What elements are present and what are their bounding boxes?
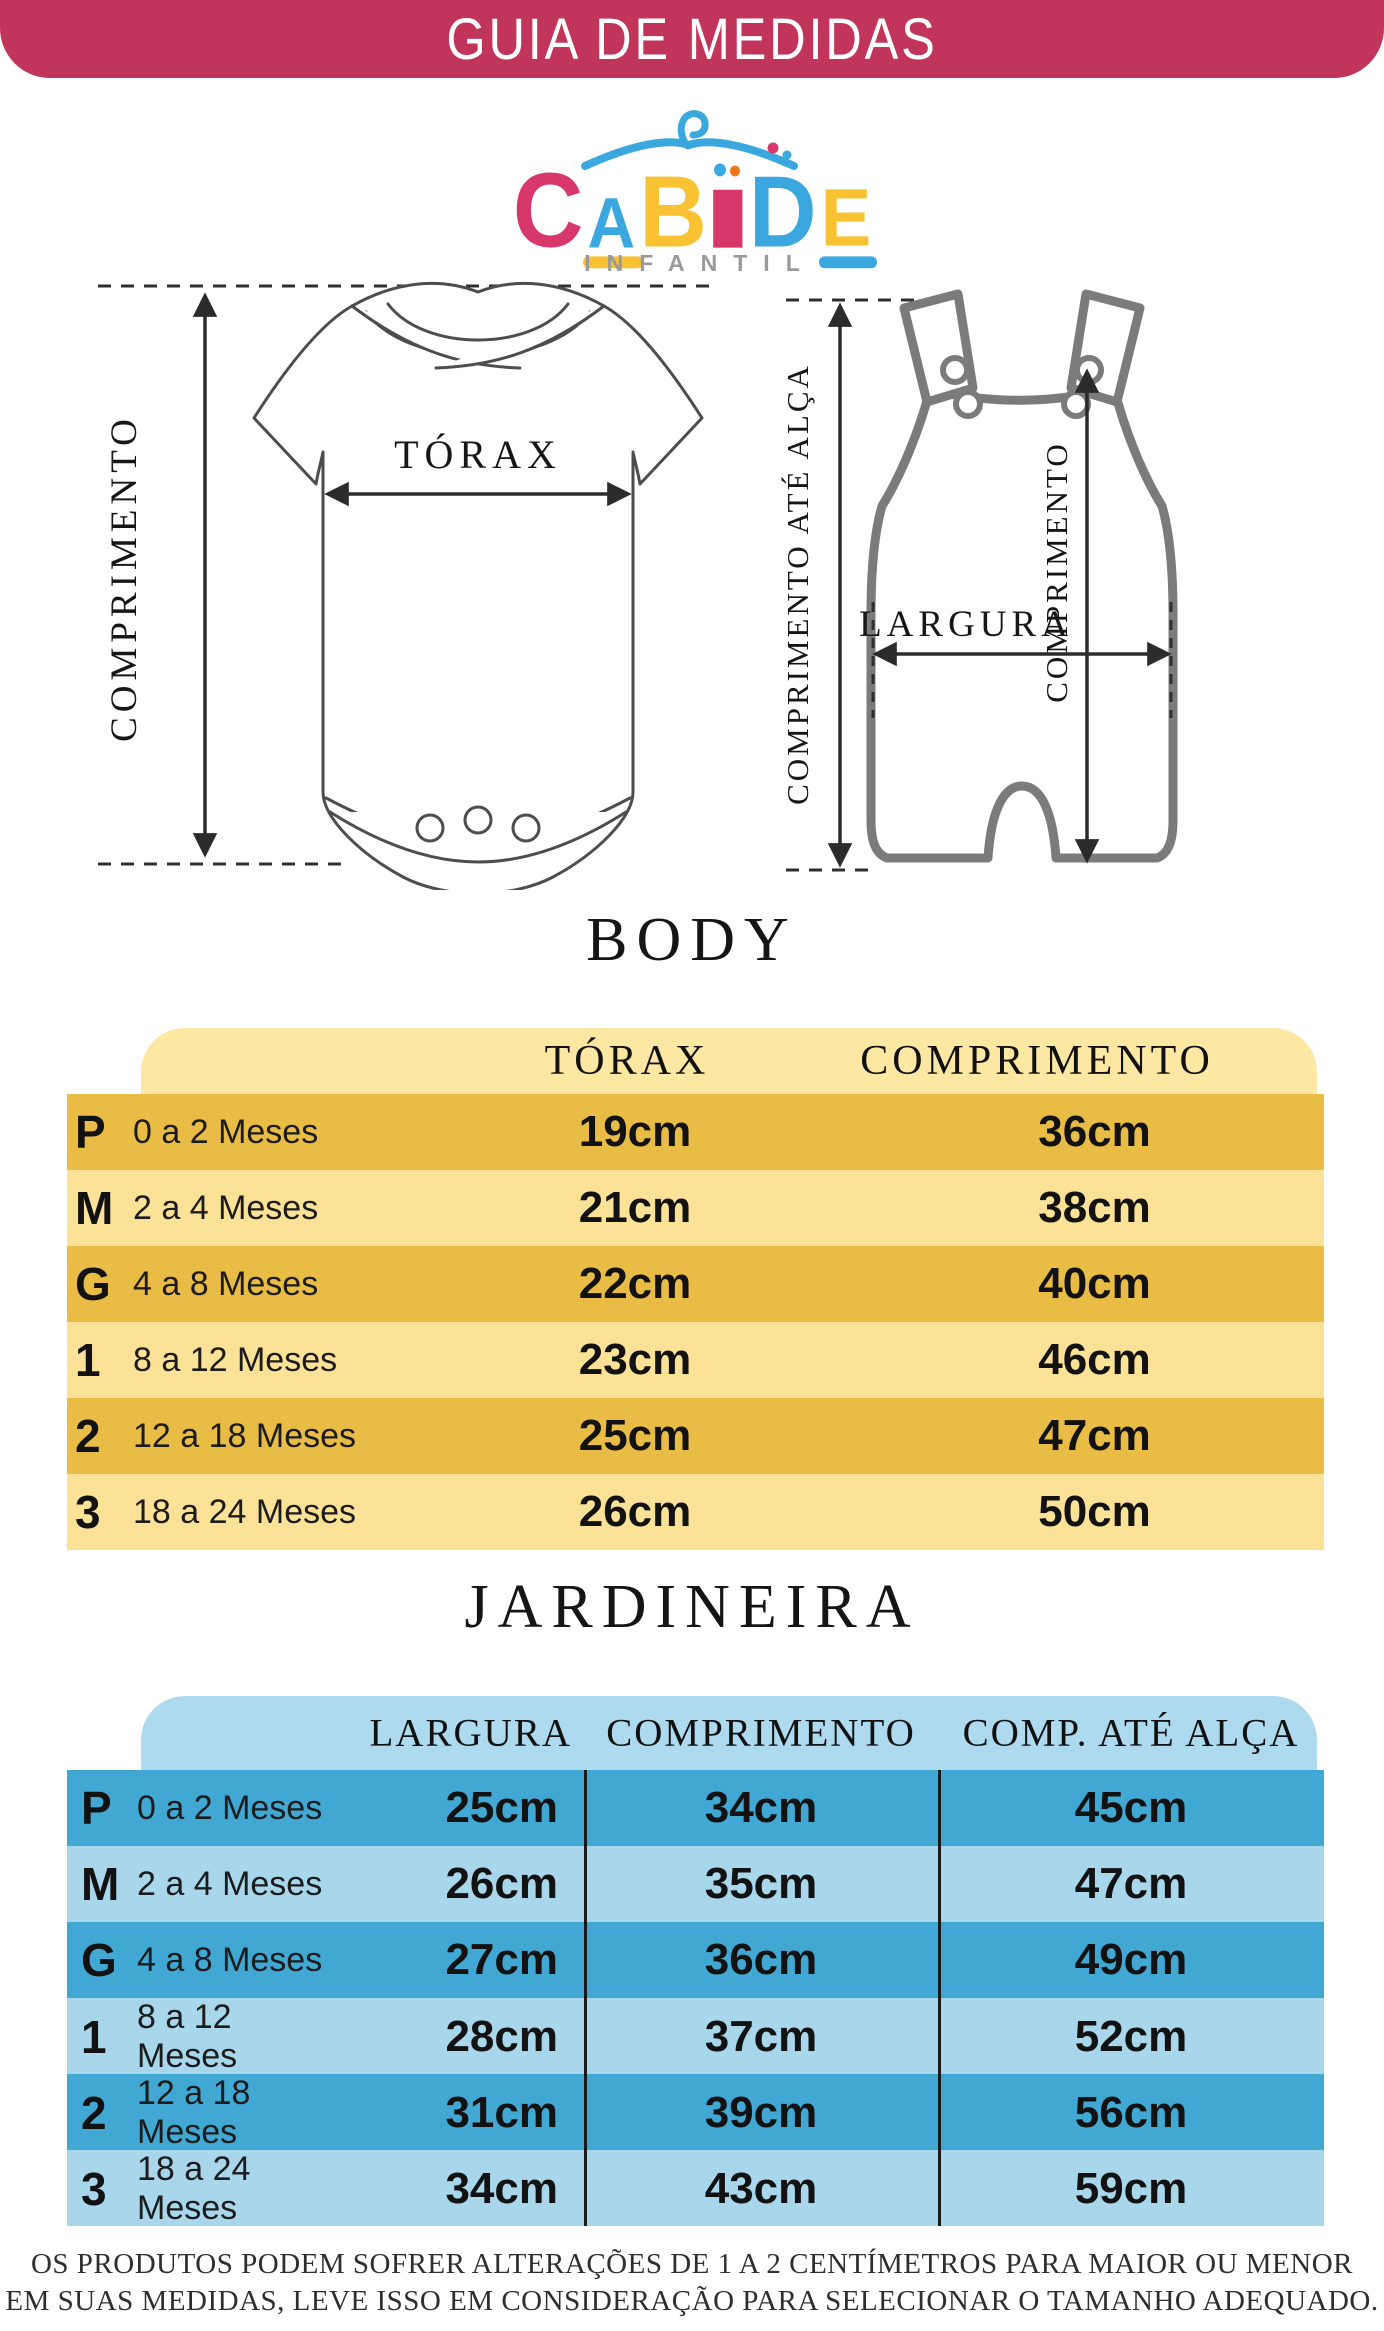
largura-value: 28cm [327, 2012, 584, 2062]
table-row: 1 8 a 12 Meses 23cm 46cm [67, 1322, 1324, 1398]
torax-value: 23cm [405, 1335, 865, 1385]
comp-ate-alca-value: 47cm [938, 1859, 1324, 1909]
comprimento-value: 36cm [865, 1107, 1324, 1157]
age-range: 18 a 24 Meses [137, 2150, 327, 2228]
comp-ate-alca-value: 59cm [938, 2164, 1324, 2214]
column-divider [584, 1696, 587, 2226]
comprimento-value: 36cm [584, 1935, 938, 1985]
table-row: M 2 a 4 Meses 26cm 35cm 47cm [67, 1846, 1324, 1922]
torax-value: 26cm [405, 1487, 865, 1537]
disclaimer-line-1: OS PRODUTOS PODEM SOFRER ALTERAÇÕES DE 1… [0, 2246, 1384, 2283]
age-range: 8 a 12 Meses [133, 1341, 405, 1380]
table-row: P 0 a 2 Meses 19cm 36cm [67, 1094, 1324, 1170]
age-range: 12 a 18 Meses [133, 1417, 405, 1456]
size-label: 3 [81, 2162, 137, 2216]
body-table-header: TÓRAX COMPRIMENTO [67, 1028, 1324, 1094]
table-row: G 4 a 8 Meses 22cm 40cm [67, 1246, 1324, 1322]
largura-value: 31cm [327, 2088, 584, 2138]
size-label: 1 [75, 1333, 133, 1387]
comp-ate-alca-value: 45cm [938, 1783, 1324, 1833]
size-label: M [81, 1857, 137, 1911]
overalls-strap-length-label: COMPRIMENTO ATÉ ALÇA [780, 363, 815, 805]
overalls-length-label: COMPRIMENTO [1039, 441, 1074, 703]
table-row: 3 18 a 24 Meses 26cm 50cm [67, 1474, 1324, 1550]
logo-letter-d: D [749, 171, 817, 252]
logo-letter-i: I [717, 185, 739, 252]
torax-value: 19cm [405, 1107, 865, 1157]
size-label: M [75, 1181, 133, 1235]
largura-value: 34cm [327, 2164, 584, 2214]
age-range: 4 a 8 Meses [133, 1265, 405, 1304]
comprimento-value: 40cm [865, 1259, 1324, 1309]
size-guide-page: GUIA DE MEDIDAS C A B I D E INFANTIL COM… [0, 0, 1384, 2331]
torax-value: 22cm [405, 1259, 865, 1309]
torax-value: 21cm [405, 1183, 865, 1233]
age-range: 0 a 2 Meses [133, 1113, 405, 1152]
disclaimer-line-2: EM SUAS MEDIDAS, LEVE ISSO EM CONSIDERAÇ… [0, 2283, 1384, 2320]
table-row: 2 12 a 18 Meses 25cm 47cm [67, 1398, 1324, 1474]
body-col-torax: TÓRAX [527, 1037, 727, 1085]
body-section-title: BODY [0, 905, 1384, 976]
torax-value: 25cm [405, 1411, 865, 1461]
age-range: 18 a 24 Meses [133, 1493, 405, 1532]
comprimento-value: 50cm [865, 1487, 1324, 1537]
size-label: 2 [81, 2086, 137, 2140]
largura-value: 27cm [327, 1935, 584, 1985]
largura-value: 26cm [327, 1859, 584, 1909]
size-label: 2 [75, 1409, 133, 1463]
table-row: P 0 a 2 Meses 25cm 34cm 45cm [67, 1770, 1324, 1846]
table-row: 1 8 a 12 Meses 28cm 37cm 52cm [67, 1998, 1324, 2074]
logo-wordmark: C A B I D E [0, 144, 1384, 252]
largura-value: 25cm [327, 1783, 584, 1833]
age-range: 2 a 4 Meses [137, 1865, 327, 1904]
table-row: 2 12 a 18 Meses 31cm 39cm 56cm [67, 2074, 1324, 2150]
age-range: 4 a 8 Meses [137, 1941, 327, 1980]
jardineira-section-title: JARDINEIRA [0, 1572, 1384, 1643]
age-range: 12 a 18 Meses [137, 2074, 327, 2152]
body-col-comprimento: COMPRIMENTO [827, 1037, 1247, 1085]
table-row: 3 18 a 24 Meses 34cm 43cm 59cm [67, 2150, 1324, 2226]
comp-ate-alca-value: 52cm [938, 2012, 1324, 2062]
page-title: GUIA DE MEDIDAS [446, 5, 937, 73]
disclaimer-note: OS PRODUTOS PODEM SOFRER ALTERAÇÕES DE 1… [0, 2246, 1384, 2320]
jardineira-col-largura: LARGURA [367, 1711, 572, 1756]
overalls-width-label: LARGURA [859, 604, 1073, 645]
bodysuit-diagram: COMPRIMENTO TÓRAX [90, 272, 730, 890]
age-range: 8 a 12 Meses [137, 1998, 327, 2076]
bodysuit-length-label: COMPRIMENTO [104, 414, 145, 742]
comprimento-value: 39cm [584, 2088, 938, 2138]
comp-ate-alca-value: 56cm [938, 2088, 1324, 2138]
column-divider [938, 1696, 941, 2226]
size-label: 1 [81, 2010, 137, 2064]
overalls-diagram: COMPRIMENTO ATÉ ALÇA COMPRIMENTO LARGURA [770, 272, 1210, 890]
size-label: G [81, 1933, 137, 1987]
comprimento-value: 46cm [865, 1335, 1324, 1385]
logo-letter-b: B [639, 171, 707, 252]
size-label: P [75, 1105, 133, 1159]
logo-letter-c: C [513, 167, 584, 252]
comprimento-value: 37cm [584, 2012, 938, 2062]
comprimento-value: 43cm [584, 2164, 938, 2214]
size-label: 3 [75, 1485, 133, 1539]
comprimento-value: 47cm [865, 1411, 1324, 1461]
age-range: 2 a 4 Meses [133, 1189, 405, 1228]
logo-letter-a: A [587, 195, 635, 252]
table-row: G 4 a 8 Meses 27cm 36cm 49cm [67, 1922, 1324, 1998]
jardineira-col-comprimento: COMPRIMENTO [584, 1711, 938, 1756]
size-label: P [81, 1781, 137, 1835]
table-row: M 2 a 4 Meses 21cm 38cm [67, 1170, 1324, 1246]
jardineira-col-comp-ate-alca: COMP. ATÉ ALÇA [938, 1711, 1324, 1756]
comp-ate-alca-value: 49cm [938, 1935, 1324, 1985]
bodysuit-chest-label: TÓRAX [394, 432, 562, 477]
body-size-table: TÓRAX COMPRIMENTO P 0 a 2 Meses 19cm 36c… [67, 1028, 1324, 1550]
logo-letter-e: E [821, 186, 872, 252]
comprimento-value: 38cm [865, 1183, 1324, 1233]
jardineira-table-header: LARGURA COMPRIMENTO COMP. ATÉ ALÇA [67, 1696, 1324, 1770]
header-banner: GUIA DE MEDIDAS [0, 0, 1384, 78]
comprimento-value: 34cm [584, 1783, 938, 1833]
size-label: G [75, 1257, 133, 1311]
age-range: 0 a 2 Meses [137, 1789, 327, 1828]
jardineira-size-table: LARGURA COMPRIMENTO COMP. ATÉ ALÇA P 0 a… [67, 1696, 1324, 2226]
comprimento-value: 35cm [584, 1859, 938, 1909]
